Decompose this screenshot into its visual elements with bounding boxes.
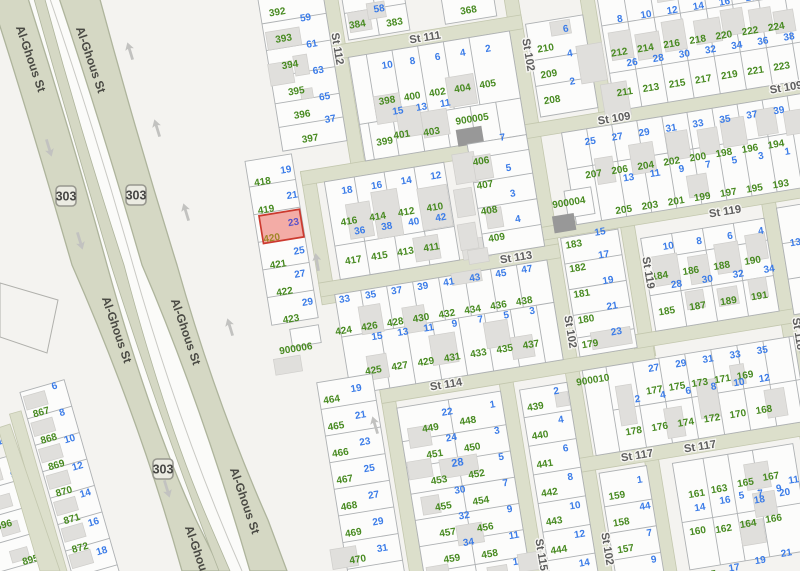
svg-text:16: 16 [719, 494, 732, 507]
svg-text:21: 21 [780, 547, 793, 560]
svg-text:33: 33 [692, 118, 705, 131]
svg-text:28: 28 [652, 52, 665, 65]
svg-text:32: 32 [458, 510, 471, 523]
svg-text:12: 12 [430, 170, 443, 183]
svg-text:10: 10 [733, 377, 746, 390]
svg-text:30: 30 [454, 484, 467, 497]
svg-text:45: 45 [495, 268, 508, 281]
svg-text:14: 14 [400, 175, 413, 188]
svg-text:13: 13 [622, 172, 635, 185]
svg-text:27: 27 [647, 362, 660, 375]
svg-text:28: 28 [670, 278, 683, 291]
svg-text:12: 12 [573, 528, 586, 541]
svg-text:41: 41 [442, 276, 455, 289]
svg-text:30: 30 [701, 273, 714, 286]
svg-text:21: 21 [286, 189, 299, 202]
svg-text:22: 22 [441, 406, 454, 419]
svg-text:10: 10 [569, 500, 582, 513]
svg-text:13: 13 [397, 326, 410, 339]
svg-text:13: 13 [415, 101, 428, 114]
svg-text:63: 63 [312, 64, 325, 77]
svg-text:24: 24 [445, 432, 458, 445]
svg-text:39: 39 [773, 105, 786, 118]
svg-text:31: 31 [702, 353, 715, 366]
svg-text:37: 37 [324, 113, 337, 126]
svg-text:303: 303 [56, 190, 77, 204]
svg-text:10: 10 [662, 240, 675, 253]
svg-text:15: 15 [594, 226, 607, 239]
svg-text:18: 18 [341, 184, 354, 197]
svg-text:14: 14 [578, 557, 591, 570]
svg-text:20: 20 [778, 487, 791, 500]
svg-text:10: 10 [381, 59, 394, 72]
svg-text:31: 31 [665, 122, 678, 135]
svg-text:42: 42 [435, 212, 448, 225]
svg-text:12: 12 [758, 372, 771, 385]
svg-text:13: 13 [789, 237, 800, 250]
svg-text:23: 23 [359, 436, 372, 449]
svg-text:303: 303 [126, 189, 147, 203]
svg-text:34: 34 [763, 263, 776, 276]
svg-text:36: 36 [353, 225, 366, 238]
svg-text:15: 15 [392, 105, 405, 118]
svg-text:25: 25 [584, 135, 597, 148]
svg-text:26: 26 [626, 57, 639, 70]
svg-text:28: 28 [451, 456, 465, 470]
svg-text:65: 65 [318, 91, 331, 104]
svg-text:10: 10 [640, 9, 653, 22]
svg-text:11: 11 [788, 474, 800, 487]
svg-text:11: 11 [423, 322, 436, 335]
svg-text:43: 43 [469, 272, 482, 285]
svg-text:19: 19 [754, 554, 767, 567]
svg-text:25: 25 [363, 462, 376, 475]
svg-text:19: 19 [350, 383, 363, 396]
svg-text:59: 59 [299, 12, 312, 25]
svg-text:29: 29 [301, 296, 314, 309]
svg-text:25: 25 [293, 245, 306, 258]
svg-text:37: 37 [746, 109, 759, 122]
svg-text:19: 19 [280, 164, 293, 177]
svg-text:21: 21 [354, 409, 367, 422]
svg-text:44: 44 [639, 500, 652, 513]
svg-text:29: 29 [638, 127, 651, 140]
svg-text:34: 34 [730, 40, 743, 53]
svg-text:37: 37 [390, 285, 403, 298]
svg-text:32: 32 [704, 44, 717, 57]
svg-text:17: 17 [597, 249, 610, 262]
svg-text:27: 27 [367, 489, 380, 502]
svg-text:31: 31 [376, 542, 389, 555]
svg-text:23: 23 [610, 326, 623, 339]
svg-text:14: 14 [692, 0, 705, 13]
svg-text:35: 35 [719, 113, 732, 126]
svg-text:61: 61 [306, 38, 319, 51]
svg-text:47: 47 [521, 263, 534, 276]
svg-text:15: 15 [371, 330, 384, 343]
svg-text:34: 34 [462, 536, 475, 549]
svg-text:33: 33 [338, 293, 351, 306]
svg-text:33: 33 [729, 349, 742, 362]
svg-text:21: 21 [606, 300, 619, 313]
svg-text:27: 27 [611, 131, 624, 144]
svg-text:16: 16 [370, 180, 383, 193]
svg-text:30: 30 [678, 48, 691, 61]
svg-text:19: 19 [602, 274, 615, 287]
svg-text:39: 39 [416, 280, 429, 293]
svg-text:38: 38 [380, 220, 393, 233]
svg-text:29: 29 [372, 516, 385, 529]
svg-text:18: 18 [753, 494, 766, 507]
svg-text:14: 14 [694, 502, 707, 515]
svg-text:38: 38 [783, 31, 796, 44]
svg-text:27: 27 [294, 268, 307, 281]
svg-text:36: 36 [757, 35, 770, 48]
svg-text:35: 35 [364, 289, 377, 302]
svg-text:58: 58 [373, 3, 386, 16]
svg-text:29: 29 [675, 358, 688, 371]
svg-text:35: 35 [756, 344, 769, 357]
svg-text:23: 23 [287, 216, 300, 229]
svg-text:303: 303 [153, 463, 174, 477]
svg-text:12: 12 [666, 4, 679, 17]
svg-text:40: 40 [407, 216, 420, 229]
svg-text:32: 32 [732, 268, 745, 281]
